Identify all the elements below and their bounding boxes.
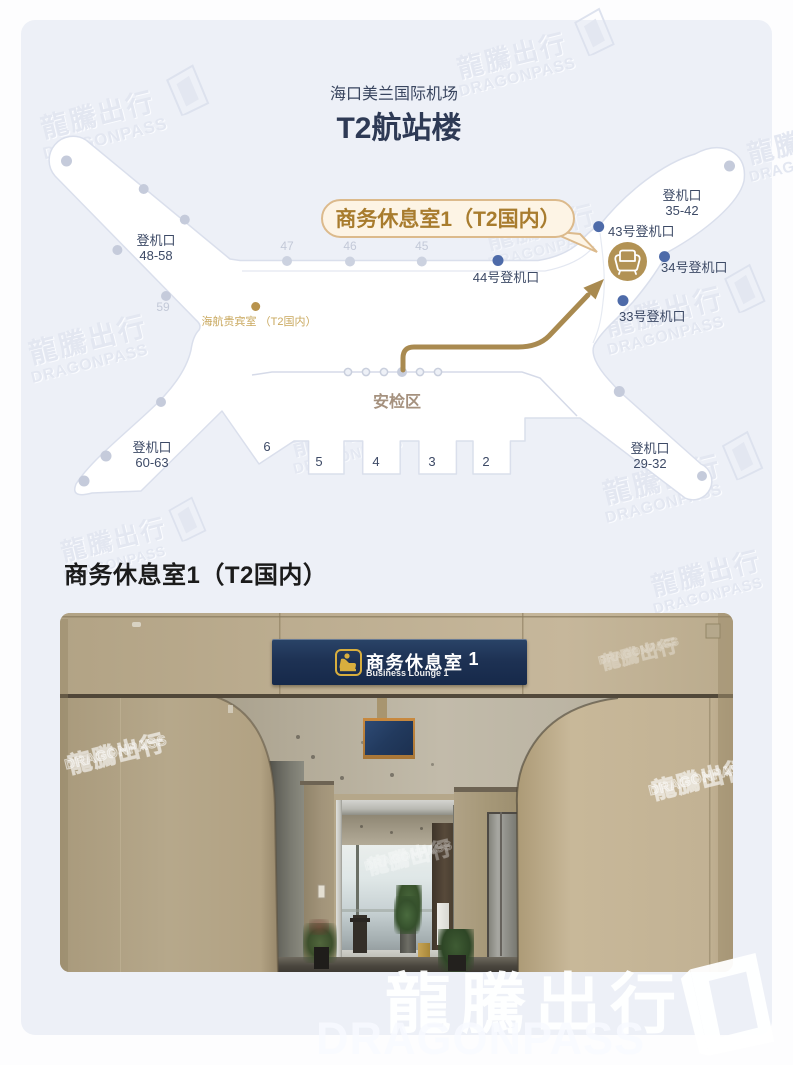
svg-text:海口美兰国际机场: 海口美兰国际机场 — [330, 85, 458, 103]
svg-text:T2航站楼: T2航站楼 — [336, 111, 461, 145]
svg-text:登机口: 登机口 — [136, 233, 175, 248]
svg-text:安检区: 安检区 — [373, 392, 421, 411]
svg-text:44号登机口: 44号登机口 — [473, 270, 539, 285]
svg-text:登机口: 登机口 — [630, 441, 669, 456]
svg-text:商务休息室1（T2国内）: 商务休息室1（T2国内） — [335, 207, 560, 231]
svg-text:33号登机口: 33号登机口 — [619, 309, 685, 324]
svg-text:35-42: 35-42 — [665, 203, 698, 218]
svg-text:60-63: 60-63 — [135, 455, 168, 470]
svg-text:43号登机口: 43号登机口 — [608, 224, 674, 239]
svg-text:46: 46 — [343, 239, 357, 253]
svg-text:34号登机口: 34号登机口 — [661, 260, 727, 275]
svg-text:45: 45 — [415, 239, 429, 253]
svg-text:登机口: 登机口 — [132, 440, 171, 455]
svg-text:6: 6 — [263, 439, 270, 454]
svg-text:5: 5 — [315, 454, 322, 469]
svg-text:3: 3 — [428, 454, 435, 469]
svg-text:2: 2 — [482, 454, 489, 469]
svg-text:登机口: 登机口 — [662, 188, 701, 203]
svg-text:4: 4 — [372, 454, 379, 469]
svg-text:海航贵宾室 （T2国内）: 海航贵宾室 （T2国内） — [202, 314, 317, 328]
svg-text:48-58: 48-58 — [139, 248, 172, 263]
svg-text:47: 47 — [280, 239, 294, 253]
svg-text:29-32: 29-32 — [633, 456, 666, 471]
svg-text:59: 59 — [156, 300, 170, 314]
